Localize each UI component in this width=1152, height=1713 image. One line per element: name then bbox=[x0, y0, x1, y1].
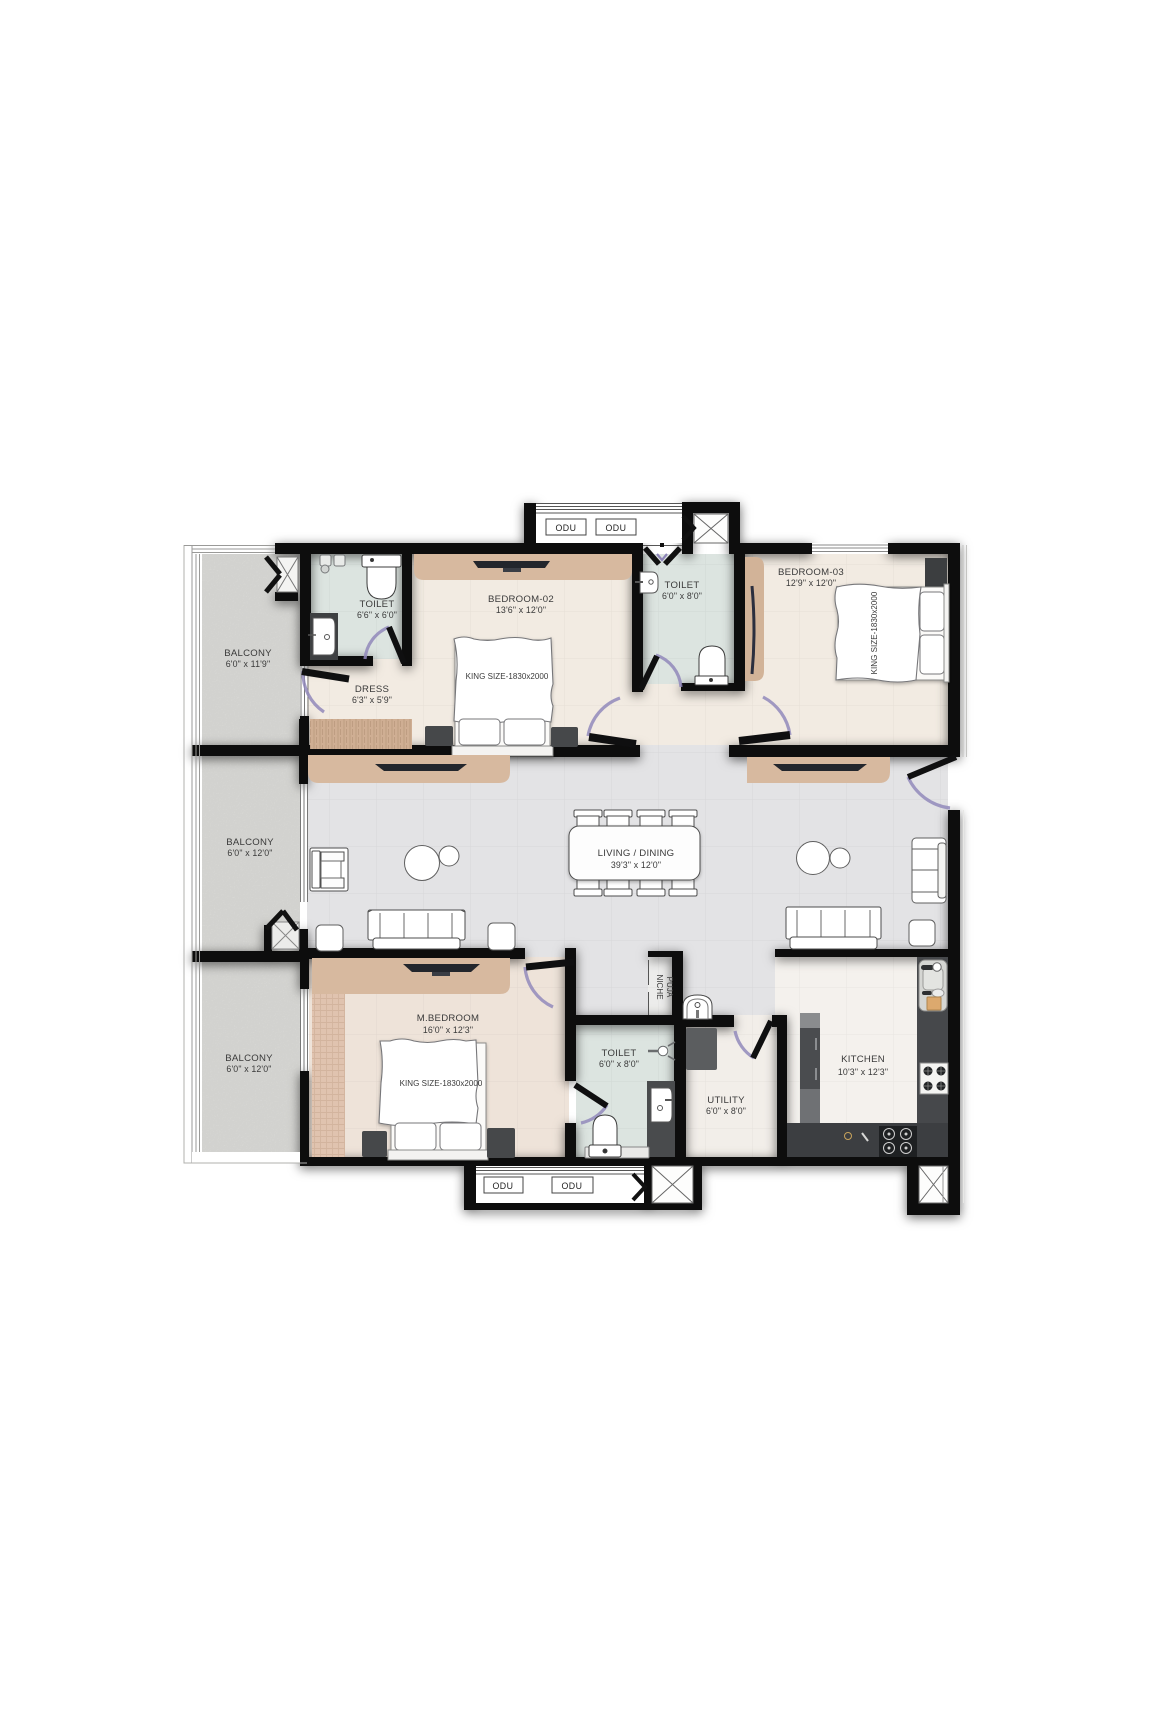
svg-text:KING SIZE-1830x2000: KING SIZE-1830x2000 bbox=[466, 672, 549, 681]
svg-text:ODU: ODU bbox=[605, 523, 626, 533]
svg-text:BALCONY: BALCONY bbox=[225, 1053, 273, 1064]
svg-text:PUJA: PUJA bbox=[665, 977, 674, 998]
svg-text:TOILET: TOILET bbox=[360, 599, 395, 610]
svg-text:6'0" x 8'0": 6'0" x 8'0" bbox=[599, 1059, 639, 1069]
svg-text:6'0" x 11'9": 6'0" x 11'9" bbox=[226, 659, 271, 669]
svg-text:6'6" x 6'0": 6'6" x 6'0" bbox=[357, 610, 397, 620]
svg-text:TOILET: TOILET bbox=[602, 1048, 637, 1059]
svg-text:BALCONY: BALCONY bbox=[224, 648, 272, 659]
svg-text:6'3" x 5'9": 6'3" x 5'9" bbox=[352, 695, 392, 705]
svg-text:39'3" x 12'0": 39'3" x 12'0" bbox=[611, 860, 661, 870]
svg-text:16'0" x 12'3": 16'0" x 12'3" bbox=[423, 1025, 473, 1035]
svg-text:BALCONY: BALCONY bbox=[226, 837, 274, 848]
svg-text:TOILET: TOILET bbox=[665, 580, 700, 591]
svg-text:6'0" x 8'0": 6'0" x 8'0" bbox=[706, 1106, 746, 1116]
svg-text:DRESS: DRESS bbox=[355, 684, 389, 695]
svg-text:KING SIZE-1830x2000: KING SIZE-1830x2000 bbox=[870, 591, 879, 674]
svg-text:ODU: ODU bbox=[561, 1181, 582, 1191]
svg-text:6'0" x 8'0": 6'0" x 8'0" bbox=[662, 591, 702, 601]
svg-text:KITCHEN: KITCHEN bbox=[841, 1054, 885, 1065]
svg-text:6'0" x 12'0": 6'0" x 12'0" bbox=[227, 848, 272, 858]
svg-text:ODU: ODU bbox=[492, 1181, 513, 1191]
svg-text:KING SIZE-1830x2000: KING SIZE-1830x2000 bbox=[400, 1079, 483, 1088]
svg-text:6'0" x 12'0": 6'0" x 12'0" bbox=[226, 1064, 271, 1074]
svg-text:NICHE: NICHE bbox=[655, 974, 664, 999]
svg-text:BEDROOM-02: BEDROOM-02 bbox=[488, 594, 554, 605]
svg-text:10'3" x 12'3": 10'3" x 12'3" bbox=[838, 1067, 888, 1077]
svg-text:13'6" x 12'0": 13'6" x 12'0" bbox=[496, 605, 546, 615]
svg-text:12'9" x 12'0": 12'9" x 12'0" bbox=[786, 578, 836, 588]
svg-text:ODU: ODU bbox=[555, 523, 576, 533]
svg-text:M.BEDROOM: M.BEDROOM bbox=[417, 1013, 479, 1024]
svg-text:UTILITY: UTILITY bbox=[707, 1095, 745, 1106]
svg-text:BEDROOM-03: BEDROOM-03 bbox=[778, 567, 844, 578]
svg-text:LIVING / DINING: LIVING / DINING bbox=[598, 848, 675, 859]
